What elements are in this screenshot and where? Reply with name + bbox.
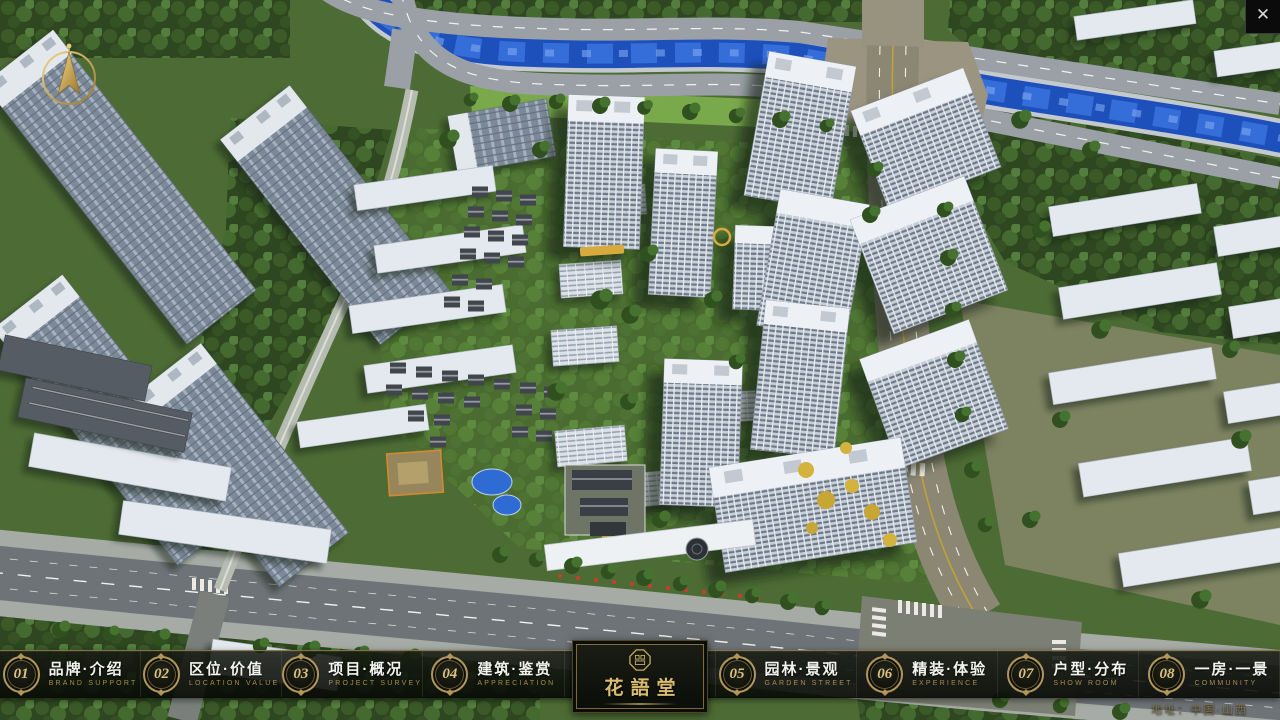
address-text: 地址：中国·山西: [1151, 701, 1248, 717]
nav-item-location[interactable]: 02 区位·价值 LOCATION VALUE: [141, 651, 282, 697]
nav-label: 项目·概况: [328, 661, 403, 678]
nav-number-badge: 08: [1148, 656, 1185, 693]
nav-number-badge: 03: [282, 656, 319, 693]
brand-logo-panel: 花語堂: [572, 640, 708, 713]
nav-sublabel: EXPERIENCE: [912, 680, 979, 687]
nav-label: 品牌·介绍: [49, 661, 124, 678]
nav-number: 03: [293, 666, 308, 683]
nav-label: 园林·景观: [765, 661, 840, 678]
nav-number-badge: 05: [719, 656, 756, 693]
nav-number: 01: [14, 666, 29, 683]
nav-label: 户型·分布: [1053, 661, 1128, 678]
nav-item-brand[interactable]: 01 品牌·介绍 BRAND SUPPORT: [0, 651, 141, 697]
brand-title: 花語堂: [597, 673, 682, 700]
entrance-gate-complex: [565, 465, 645, 539]
nav-number: 06: [877, 666, 892, 683]
brand-divider: [603, 703, 677, 705]
nav-item-architecture[interactable]: 04 建筑·鉴赏 APPRECIATION: [423, 651, 564, 697]
pool: [493, 495, 521, 515]
nav-item-project[interactable]: 03 项目·概况 PROJECT SURVEY: [282, 651, 423, 697]
nav-sublabel: GARDEN STREET: [765, 680, 853, 687]
nav-sublabel: LOCATION VALUE: [189, 680, 279, 687]
compass-icon: [38, 36, 100, 110]
nav-label: 建筑·鉴赏: [477, 661, 552, 678]
nav-label: 精装·体验: [912, 661, 987, 678]
nav-number: 07: [1018, 666, 1033, 683]
nav-number: 02: [154, 666, 169, 683]
presentation-window: ✕ 01 品牌·介绍 BRAND SUPPORT 02 区位·价值 LOCATI…: [0, 0, 1280, 720]
nav-label: 区位·价值: [189, 661, 264, 678]
nav-sublabel: BRAND SUPPORT: [49, 680, 138, 687]
nav-number-badge: 02: [143, 656, 180, 693]
nav-sublabel: SHOW ROOM: [1053, 680, 1118, 687]
nav-item-floorplans[interactable]: 07 户型·分布 SHOW ROOM: [998, 651, 1139, 697]
close-button[interactable]: ✕: [1245, 0, 1280, 34]
nav-number-badge: 04: [431, 656, 468, 693]
nav-number-badge: 01: [3, 656, 40, 693]
nav-item-views[interactable]: 08 一房·一景 COMMUNITY: [1139, 651, 1280, 697]
masterplan-aerial-render: [0, 0, 1280, 720]
nav-item-landscape[interactable]: 05 园林·景观 GARDEN STREET: [716, 651, 857, 697]
nav-sublabel: APPRECIATION: [477, 680, 555, 687]
nav-number: 05: [730, 666, 745, 683]
nav-number: 04: [442, 666, 457, 683]
nav-number-badge: 07: [1007, 656, 1044, 693]
nav-number: 08: [1159, 666, 1174, 683]
nav-sublabel: COMMUNITY: [1194, 680, 1257, 687]
nav-sublabel: PROJECT SURVEY: [328, 680, 422, 687]
nav-label: 一房·一景: [1194, 661, 1269, 678]
brand-seal-icon: [629, 649, 651, 671]
nav-item-interior[interactable]: 06 精装·体验 EXPERIENCE: [857, 651, 998, 697]
nav-number-badge: 06: [866, 656, 903, 693]
